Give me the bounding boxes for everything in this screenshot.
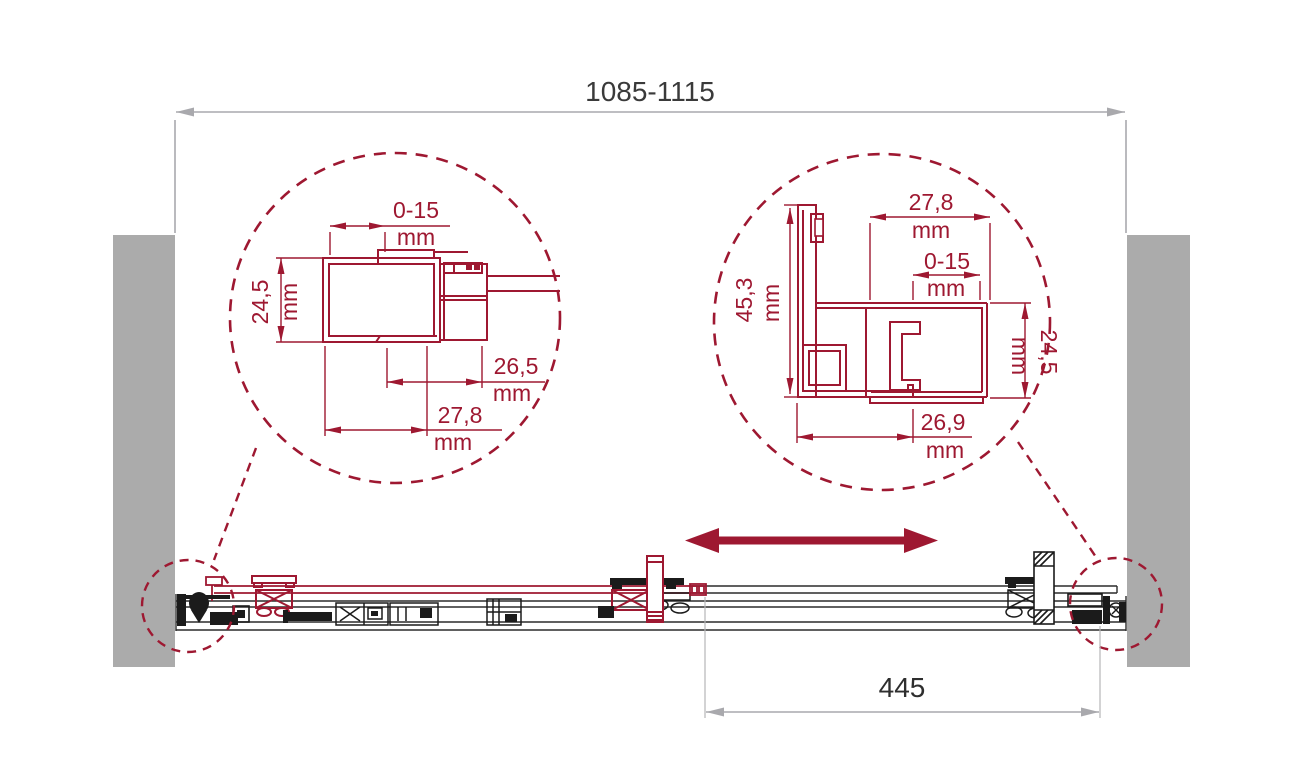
right-wall-height-unit: mm bbox=[758, 284, 784, 322]
right-wall-height-value: 45,3 bbox=[731, 278, 757, 323]
travel-label: 445 bbox=[879, 672, 926, 703]
left-adjust-value: 0-15 bbox=[393, 197, 439, 223]
shower-door-technical-drawing: 1085-1115 bbox=[0, 0, 1300, 780]
central-roller-cluster bbox=[598, 556, 706, 622]
left-adjust-unit: mm bbox=[397, 224, 435, 250]
right-door-depth-value: 24,5 bbox=[1036, 330, 1062, 375]
left-outer-width-unit: mm bbox=[434, 429, 472, 455]
right-adjust-value: 0-15 bbox=[924, 248, 970, 274]
guide-cylinder bbox=[1034, 552, 1054, 624]
fixed-panel-stile bbox=[647, 556, 663, 622]
overall-width-label: 1085-1115 bbox=[585, 76, 715, 107]
left-wall bbox=[113, 235, 175, 667]
right-adjust-unit: mm bbox=[927, 275, 965, 301]
callout-leader-line bbox=[1018, 442, 1098, 560]
left-profile-section bbox=[323, 250, 560, 342]
right-bottom-width-unit: mm bbox=[926, 437, 964, 463]
right-wall-bracket bbox=[1068, 594, 1126, 624]
callout-leader-line bbox=[214, 448, 256, 560]
left-wall-bracket bbox=[177, 592, 249, 626]
double-arrow-icon bbox=[685, 528, 938, 553]
right-top-width-unit: mm bbox=[912, 217, 950, 243]
right-bottom-width-value: 26,9 bbox=[921, 409, 966, 435]
center-support-block bbox=[487, 599, 521, 625]
track-assembly bbox=[142, 552, 1162, 652]
right-profile-section bbox=[798, 205, 987, 403]
right-profile-dimensions bbox=[784, 205, 1031, 443]
right-wall bbox=[1127, 235, 1190, 667]
right-detail-circle: 27,8 mm 0-15 mm 45,3 mm 26,9 mm 24,5 mm bbox=[714, 154, 1098, 560]
right-door-depth-unit: mm bbox=[1007, 337, 1033, 375]
left-depth-unit: mm bbox=[276, 283, 302, 321]
left-panel-roller bbox=[252, 576, 296, 616]
right-top-width-value: 27,8 bbox=[909, 189, 954, 215]
technical-drawing-page: 1085-1115 bbox=[0, 0, 1300, 780]
left-outer-width-value: 27,8 bbox=[438, 402, 483, 428]
left-detail-circle: 0-15 mm 24,5 mm 26,5 mm 27,8 mm bbox=[214, 153, 560, 560]
right-roller-cluster bbox=[1005, 552, 1126, 624]
left-inner-width-value: 26,5 bbox=[494, 353, 539, 379]
left-inner-width-unit: mm bbox=[493, 380, 531, 406]
left-depth-value: 24,5 bbox=[247, 280, 273, 325]
